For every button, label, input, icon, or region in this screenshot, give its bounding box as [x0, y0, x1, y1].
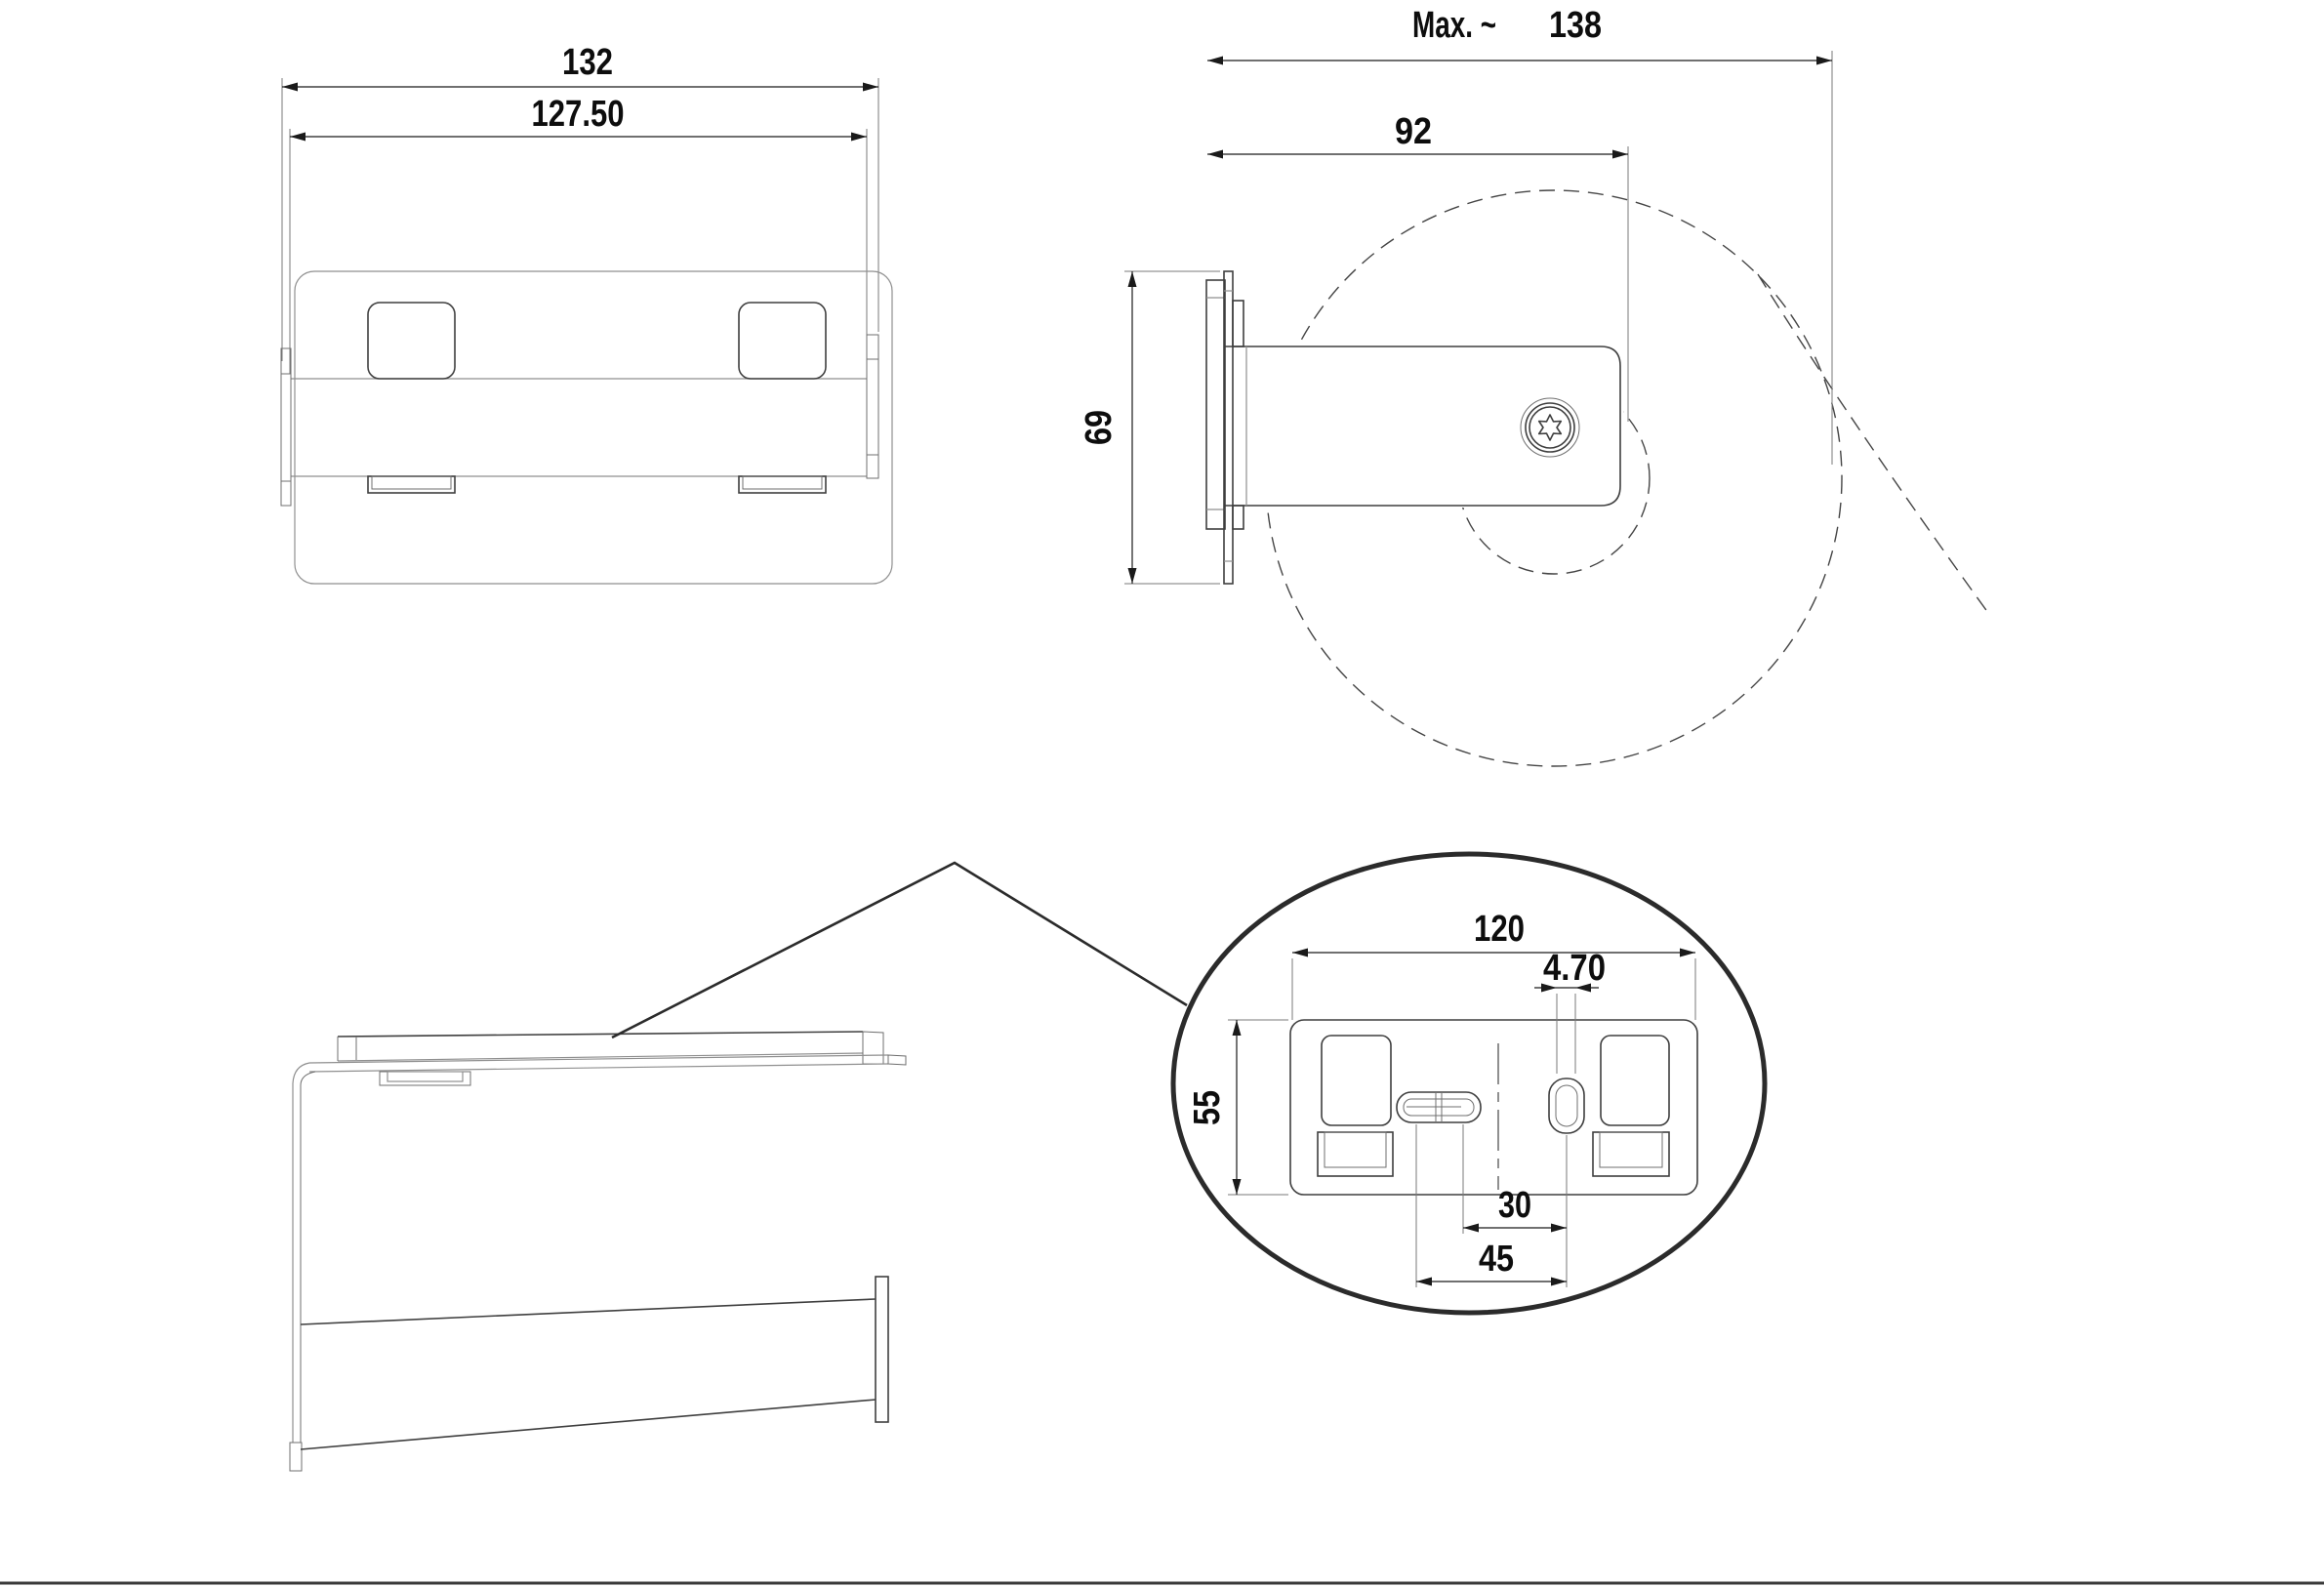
- dim-bar-width-text: 127.50: [532, 94, 625, 135]
- dim-slot-spacing-outer-text: 45: [1479, 1239, 1514, 1280]
- technical-drawing: 132 127.50: [0, 0, 2324, 1587]
- sheet-background: [0, 0, 2324, 1587]
- dim-slot-width-text: 4.70: [1543, 948, 1606, 989]
- dim-max-reach-prefix: Max. ~: [1412, 5, 1496, 46]
- dim-wall-to-axis-text: 92: [1395, 111, 1432, 152]
- drawing-sheet: 132 127.50: [0, 0, 2324, 1587]
- dim-overall-width-text: 132: [562, 42, 613, 83]
- dim-max-reach-value: 138: [1549, 5, 1602, 46]
- dim-detail-plate-height-text: 55: [1187, 1090, 1228, 1125]
- dim-slot-spacing-inner-text: 30: [1498, 1185, 1531, 1226]
- dim-plate-width-text: 120: [1474, 909, 1525, 950]
- dim-plate-height-text: 69: [1079, 410, 1120, 445]
